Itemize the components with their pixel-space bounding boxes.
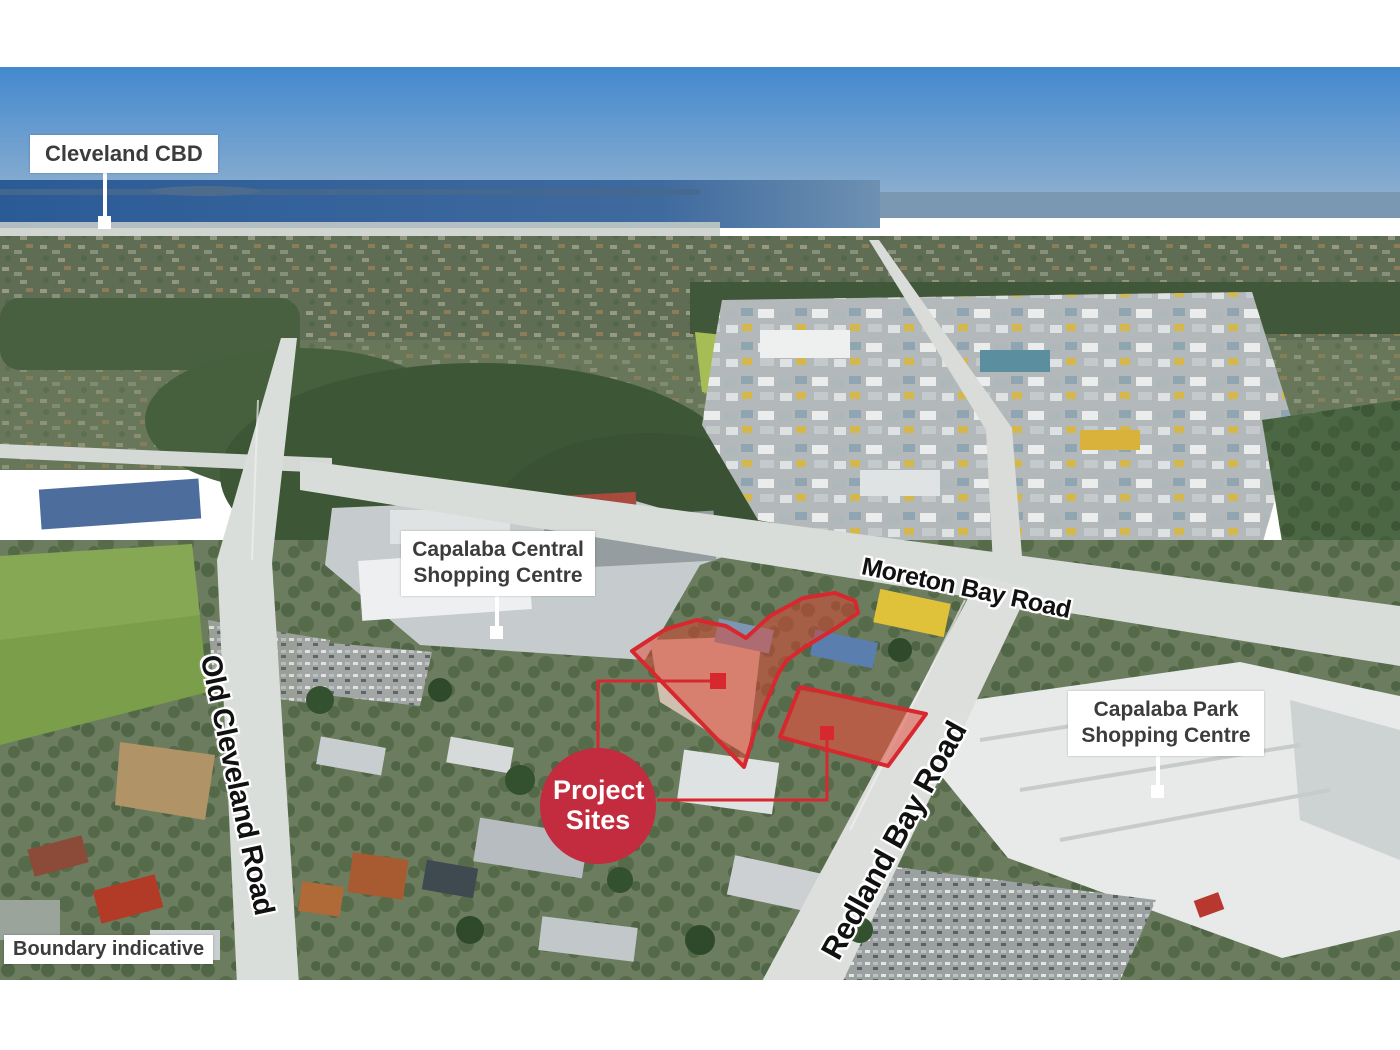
aerial-photo-painting [0, 67, 1400, 980]
capalaba-central-label: Capalaba Central Shopping Centre [401, 531, 595, 596]
aerial-map-page: Cleveland CBD Capalaba Central Shopping … [0, 0, 1400, 1050]
project-sites-badge-text: Project Sites [553, 776, 643, 835]
aerial-photo [0, 67, 1400, 980]
project-sites-badge: Project Sites [540, 748, 656, 864]
capalaba-park-label: Capalaba Park Shopping Centre [1068, 691, 1264, 756]
boundary-indicative-label: Boundary indicative [4, 935, 213, 964]
cleveland-cbd-label: Cleveland CBD [30, 135, 218, 173]
